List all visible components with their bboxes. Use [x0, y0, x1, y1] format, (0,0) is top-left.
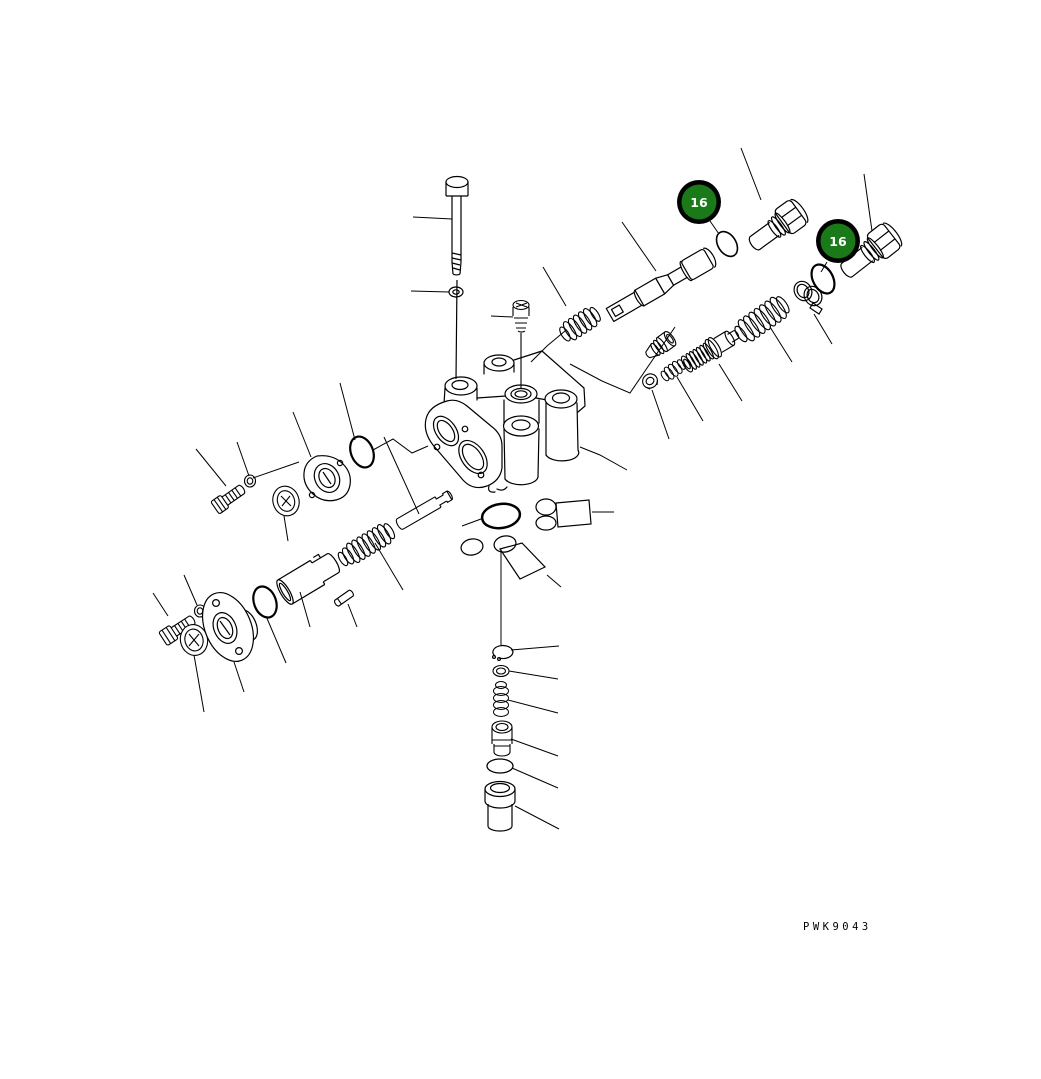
callout-badge-16-a[interactable]: 16 — [677, 180, 721, 224]
bolt-long — [446, 177, 468, 380]
valve-spool — [605, 246, 719, 325]
o-ring-bottom — [487, 759, 513, 773]
snap-ring — [493, 646, 513, 661]
washer — [449, 287, 463, 297]
badge-label: 16 — [690, 195, 708, 210]
o-ring-lower-left — [249, 583, 281, 621]
retainer-clips — [791, 278, 826, 314]
spring-bottom-column — [494, 682, 509, 717]
seal-kit-right — [536, 499, 591, 530]
o-ring-upper-left — [346, 433, 378, 471]
o-ring-a — [712, 228, 742, 260]
nut-upper-left — [245, 475, 256, 487]
parts-diagram-page: 16 16 PWK9043 — [0, 0, 1041, 1079]
badge-label: 16 — [829, 234, 847, 249]
plug-slotted — [513, 301, 529, 389]
callout-badge-16-b[interactable]: 16 — [816, 219, 860, 263]
flange-cover-upper — [304, 456, 350, 501]
retainer-ring — [493, 666, 509, 677]
bolt-upper-left — [211, 482, 248, 514]
hex-plug-a — [743, 196, 812, 257]
spring-top — [556, 304, 603, 345]
bushing-upper — [269, 483, 303, 520]
valve-threaded — [678, 324, 743, 375]
exploded-view-drawing: 16 16 PWK9043 — [0, 0, 1041, 1079]
fitting-cone — [642, 330, 678, 363]
piston — [273, 548, 343, 606]
seal-kit-lower — [460, 534, 545, 579]
plug-bottom — [485, 782, 515, 832]
drawing-code: PWK9043 — [803, 921, 872, 933]
poppet-valve — [492, 721, 512, 756]
o-ring-large — [481, 501, 522, 530]
spring-right — [731, 292, 793, 346]
push-rod — [395, 489, 454, 530]
pin — [334, 589, 355, 607]
valve-body — [425, 351, 585, 492]
spring-left — [335, 520, 398, 570]
